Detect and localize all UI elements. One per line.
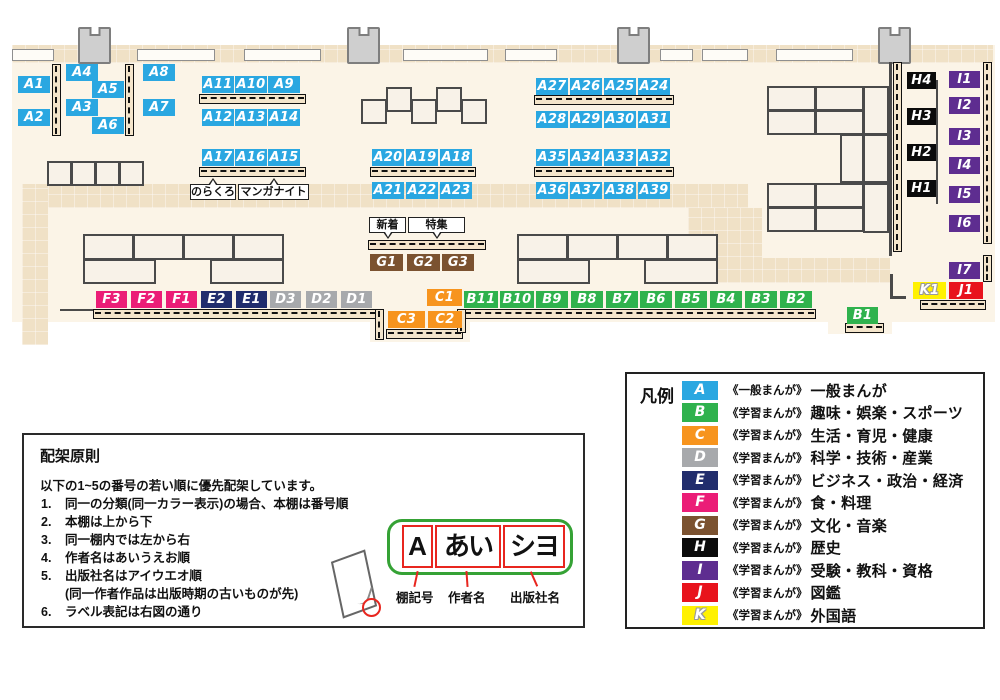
- shelf-label-a17: A17: [202, 149, 234, 166]
- legend-color-chip: I: [682, 561, 718, 580]
- shelf-label-j1: J1: [949, 282, 983, 299]
- table: [644, 259, 718, 284]
- shelf-label-h2: H2: [907, 144, 936, 161]
- pillar: [347, 27, 380, 64]
- window: [137, 49, 215, 61]
- principles-list: 1.同一の分類(同一カラー表示)の場合、本棚は番号順2.本棚は上から下3.同一棚…: [41, 495, 348, 621]
- callout-label: 特集: [408, 217, 465, 233]
- shelf-label-h3: H3: [907, 108, 936, 125]
- shelf-label-a38: A38: [604, 182, 636, 199]
- shelf-label-a16: A16: [235, 149, 267, 166]
- table: [133, 234, 184, 260]
- pillar: [78, 27, 111, 64]
- shelf-label-a35: A35: [536, 149, 568, 166]
- shelf-label-a31: A31: [638, 111, 670, 128]
- legend-color-chip: G: [682, 516, 718, 535]
- shelf-label-a15: A15: [268, 149, 300, 166]
- shelf-label-i7: I7: [949, 262, 980, 279]
- window: [403, 49, 488, 61]
- shelf-unit: [893, 62, 902, 252]
- floor-map-page: A1A2A4A5A3A6A8A7A11A10A9A12A13A14A17A16A…: [0, 0, 1000, 700]
- table: [863, 183, 889, 233]
- window: [776, 49, 853, 61]
- table: [95, 161, 120, 186]
- legend-category: 趣味・娯楽・スポーツ: [811, 402, 964, 423]
- shelf-unit: [199, 94, 306, 104]
- shelf-label-i6: I6: [949, 215, 980, 232]
- principles-item-number: 1.: [41, 495, 65, 513]
- shelf-label-a6: A6: [92, 117, 124, 134]
- table: [815, 110, 864, 135]
- legend-category: ビジネス・政治・経済: [811, 470, 964, 491]
- legend-scope: 《学習まんが》: [727, 472, 808, 488]
- shelf-label-a24: A24: [638, 78, 670, 95]
- legend-color-chip: J: [682, 583, 718, 602]
- shelf-label-b7: B7: [606, 291, 638, 308]
- shelf-label-a27: A27: [536, 78, 568, 95]
- table: [815, 183, 864, 208]
- label-author-box: あい: [435, 525, 501, 568]
- shelf-label-f3: F3: [96, 291, 127, 308]
- legend-color-chip: D: [682, 448, 718, 467]
- shelf-label-f1: F1: [166, 291, 197, 308]
- shelf-label-i4: I4: [949, 157, 980, 174]
- pillar-notch: [89, 27, 100, 36]
- legend-row-i: I《学習まんが》受験・教科・資格: [682, 559, 964, 582]
- shelf-label-a39: A39: [638, 182, 670, 199]
- table: [83, 234, 134, 260]
- shelf-label-c1: C1: [427, 289, 462, 306]
- shelf-label-a5: A5: [92, 81, 124, 98]
- table: [436, 87, 462, 112]
- principles-item-number: 6.: [41, 603, 65, 621]
- principles-item: 6.ラベル表記は右図の通り: [41, 603, 348, 621]
- principles-item-text: 作者名はあいうえお順: [65, 549, 190, 567]
- principles-item-text: 出版社名はアイウエオ順: [65, 567, 202, 585]
- table: [767, 207, 816, 232]
- legend-rows: A《一般まんが》一般まんがB《学習まんが》趣味・娯楽・スポーツC《学習まんが》生…: [682, 379, 964, 627]
- shelf-label-h1: H1: [907, 180, 936, 197]
- shelf-label-a13: A13: [235, 109, 267, 126]
- shelf-label-a3: A3: [66, 99, 98, 116]
- principles-item: 2.本棚は上から下: [41, 513, 348, 531]
- principles-item-number: 4.: [41, 549, 65, 567]
- shelf-label-b6: B6: [640, 291, 672, 308]
- legend-row-b: B《学習まんが》趣味・娯楽・スポーツ: [682, 402, 964, 425]
- pillar-notch: [889, 27, 900, 36]
- caption-shelf-code: 棚記号: [396, 587, 434, 606]
- legend-category: 一般まんが: [811, 380, 888, 401]
- wall-line: [889, 62, 892, 256]
- legend-category: 図鑑: [811, 582, 842, 603]
- shelf-label-a33: A33: [604, 149, 636, 166]
- shelf-label-a29: A29: [570, 111, 602, 128]
- legend-scope: 《学習まんが》: [727, 540, 808, 556]
- legend-category: 文化・音楽: [811, 515, 888, 536]
- table: [815, 207, 864, 232]
- principles-item-text: 同一の分類(同一カラー表示)の場合、本棚は番号順: [65, 495, 348, 513]
- legend-row-c: C《学習まんが》生活・育児・健康: [682, 424, 964, 447]
- shelf-label-a25: A25: [604, 78, 636, 95]
- shelf-label-b4: B4: [710, 291, 742, 308]
- shelf-unit: [463, 309, 816, 319]
- legend-scope: 《学習まんが》: [727, 495, 808, 511]
- shelf-label-a36: A36: [536, 182, 568, 199]
- legend-scope: 《学習まんが》: [727, 450, 808, 466]
- table: [47, 161, 72, 186]
- shelf-label-d1: D1: [341, 291, 372, 308]
- legend-title: 凡例: [640, 382, 674, 407]
- legend-category: 歴史: [811, 537, 842, 558]
- table: [71, 161, 96, 186]
- shelf-label-a32: A32: [638, 149, 670, 166]
- legend-row-j: J《学習まんが》図鑑: [682, 582, 964, 605]
- shelf-label-e2: E2: [201, 291, 232, 308]
- principles-item-text: 同一棚内では左から右: [65, 531, 190, 549]
- principles-box: 配架原則 以下の1~5の番号の若い順に優先配架しています。 1.同一の分類(同一…: [22, 433, 585, 628]
- principles-item-note: (同一作者作品は出版時期の古いものが先): [65, 585, 348, 603]
- legend-color-chip: F: [682, 493, 718, 512]
- legend-row-k: K《学習まんが》外国語: [682, 604, 964, 627]
- principles-item-number: 3.: [41, 531, 65, 549]
- shelf-unit: [370, 167, 476, 177]
- principles-item-number: 5.: [41, 567, 65, 585]
- window: [660, 49, 693, 61]
- shelf-label-b3: B3: [745, 291, 777, 308]
- legend-category: 科学・技術・産業: [811, 447, 933, 468]
- shelf-unit: [386, 329, 463, 339]
- table: [840, 134, 864, 183]
- table: [411, 99, 437, 124]
- shelf-label-b11: B11: [464, 291, 498, 308]
- shelf-label-a26: A26: [570, 78, 602, 95]
- table: [767, 183, 816, 208]
- table: [863, 86, 889, 135]
- table: [183, 234, 234, 260]
- shelf-unit: [199, 167, 306, 177]
- shelf-unit: [534, 95, 674, 105]
- shelf-unit: [368, 240, 486, 250]
- window: [505, 49, 557, 61]
- wall-line: [936, 80, 938, 204]
- shelf-label-c3: C3: [388, 311, 425, 328]
- principles-title: 配架原則: [40, 445, 100, 466]
- table: [815, 86, 864, 111]
- shelf-label-d2: D2: [306, 291, 337, 308]
- callout-label: のらくろ: [190, 184, 236, 200]
- table: [567, 234, 618, 260]
- legend-scope: 《学習まんが》: [727, 427, 808, 443]
- pillar-notch: [628, 27, 639, 36]
- principles-item: 1.同一の分類(同一カラー表示)の場合、本棚は番号順: [41, 495, 348, 513]
- shelf-label-f2: F2: [131, 291, 162, 308]
- shelf-label-g1: G1: [370, 254, 403, 271]
- principles-item: 5.出版社名はアイウエオ順: [41, 567, 348, 585]
- window: [702, 49, 748, 61]
- principles-item-text: ラベル表記は右図の通り: [65, 603, 203, 621]
- legend-box: 凡例 A《一般まんが》一般まんがB《学習まんが》趣味・娯楽・スポーツC《学習まん…: [625, 372, 985, 629]
- shelf-unit: [534, 167, 674, 177]
- shelf-unit: [983, 62, 992, 244]
- wall-line: [890, 296, 906, 299]
- shelf-label-a8: A8: [143, 64, 175, 81]
- legend-color-chip: K: [682, 606, 718, 625]
- table: [517, 234, 568, 260]
- table: [667, 234, 718, 260]
- legend-row-h: H《学習まんが》歴史: [682, 537, 964, 560]
- caption-publisher: 出版社名: [510, 587, 560, 606]
- shelf-label-a23: A23: [440, 182, 472, 199]
- legend-color-chip: C: [682, 426, 718, 445]
- legend-scope: 《学習まんが》: [727, 405, 808, 421]
- table: [767, 86, 816, 111]
- legend-category: 外国語: [811, 605, 857, 626]
- legend-row-g: G《学習まんが》文化・音楽: [682, 514, 964, 537]
- shelf-unit: [93, 309, 378, 319]
- shelf-label-b10: B10: [500, 291, 534, 308]
- table: [361, 99, 387, 124]
- shelf-unit: [375, 309, 384, 340]
- window: [12, 49, 54, 61]
- legend-category: 受験・教科・資格: [811, 560, 933, 581]
- shelf-label-i2: I2: [949, 97, 980, 114]
- shelf-unit: [52, 64, 61, 136]
- shelf-label-a4: A4: [66, 64, 98, 81]
- callout-label: マンガナイト: [238, 184, 309, 200]
- shelf-label-a20: A20: [372, 149, 404, 166]
- table: [517, 259, 590, 284]
- label-position-circle: [362, 598, 381, 617]
- legend-row-a: A《一般まんが》一般まんが: [682, 379, 964, 402]
- shelf-unit: [125, 64, 134, 136]
- table: [767, 110, 816, 135]
- callout-label: 新着: [369, 217, 406, 233]
- shelf-label-i5: I5: [949, 186, 980, 203]
- shelf-label-e1: E1: [236, 291, 267, 308]
- shelf-label-h4: H4: [907, 72, 936, 89]
- legend-scope: 《学習まんが》: [727, 585, 808, 601]
- table: [386, 87, 412, 112]
- shelf-label-a10: A10: [235, 76, 267, 93]
- shelf-label-a1: A1: [18, 76, 50, 93]
- legend-category: 食・料理: [811, 492, 872, 513]
- table: [210, 259, 284, 284]
- legend-row-d: D《学習まんが》科学・技術・産業: [682, 447, 964, 470]
- shelf-label-a7: A7: [143, 99, 175, 116]
- principles-item-text: 本棚は上から下: [65, 513, 153, 531]
- pillar-notch: [358, 27, 369, 36]
- wall-line: [60, 309, 93, 311]
- shelf-label-b1: B1: [847, 307, 878, 324]
- shelf-label-i1: I1: [949, 71, 980, 88]
- legend-scope: 《学習まんが》: [727, 607, 808, 623]
- table: [83, 259, 156, 284]
- legend-row-e: E《学習まんが》ビジネス・政治・経済: [682, 469, 964, 492]
- legend-scope: 《一般まんが》: [727, 382, 808, 398]
- shelf-label-a2: A2: [18, 109, 50, 126]
- shelf-label-i3: I3: [949, 128, 980, 145]
- legend-color-chip: B: [682, 403, 718, 422]
- caption-author: 作者名: [448, 587, 486, 606]
- shelf-label-d3: D3: [270, 291, 301, 308]
- table: [461, 99, 487, 124]
- legend-category: 生活・育児・健康: [811, 425, 933, 446]
- shelf-label-a12: A12: [202, 109, 234, 126]
- shelf-label-a28: A28: [536, 111, 568, 128]
- shelf-label-g3: G3: [442, 254, 474, 271]
- shelf-label-a11: A11: [202, 76, 234, 93]
- shelf-label-g2: G2: [407, 254, 440, 271]
- table: [617, 234, 668, 260]
- shelf-unit: [845, 323, 884, 333]
- shelf-label-a9: A9: [268, 76, 300, 93]
- shelf-label-b8: B8: [571, 291, 603, 308]
- pillar: [878, 27, 911, 64]
- label-publisher-box: シヨ: [503, 525, 565, 568]
- legend-row-f: F《学習まんが》食・料理: [682, 492, 964, 515]
- legend-color-chip: H: [682, 538, 718, 557]
- label-shelf-code-box: A: [402, 525, 433, 568]
- legend-scope: 《学習まんが》: [727, 517, 808, 533]
- legend-color-chip: E: [682, 471, 718, 490]
- pillar: [617, 27, 650, 64]
- shelf-label-a18: A18: [440, 149, 472, 166]
- principles-item: 4.作者名はあいうえお順: [41, 549, 348, 567]
- shelf-label-k1: K1: [913, 282, 946, 299]
- table: [233, 234, 284, 260]
- table: [863, 134, 889, 183]
- shelf-label-a37: A37: [570, 182, 602, 199]
- shelf-label-b9: B9: [536, 291, 568, 308]
- shelf-unit: [983, 255, 992, 282]
- shelf-label-a22: A22: [406, 182, 438, 199]
- legend-scope: 《学習まんが》: [727, 562, 808, 578]
- shelf-label-b5: B5: [675, 291, 707, 308]
- shelf-label-b2: B2: [780, 291, 812, 308]
- table: [119, 161, 144, 186]
- shelf-label-a14: A14: [268, 109, 300, 126]
- label-diagram: A あい シヨ: [387, 519, 573, 575]
- legend-color-chip: A: [682, 381, 718, 400]
- shelf-label-a30: A30: [604, 111, 636, 128]
- shelf-label-a19: A19: [406, 149, 438, 166]
- walkway: [762, 258, 890, 283]
- shelf-label-c2: C2: [428, 311, 462, 328]
- book-illustration: [322, 551, 388, 623]
- principles-item-number: 2.: [41, 513, 65, 531]
- shelf-label-a34: A34: [570, 149, 602, 166]
- shelf-label-a21: A21: [372, 182, 404, 199]
- principles-intro: 以下の1~5の番号の若い順に優先配架しています。: [40, 475, 322, 494]
- window: [244, 49, 321, 61]
- shelf-unit: [920, 300, 986, 310]
- principles-item: 3.同一棚内では左から右: [41, 531, 348, 549]
- walkway: [22, 184, 48, 345]
